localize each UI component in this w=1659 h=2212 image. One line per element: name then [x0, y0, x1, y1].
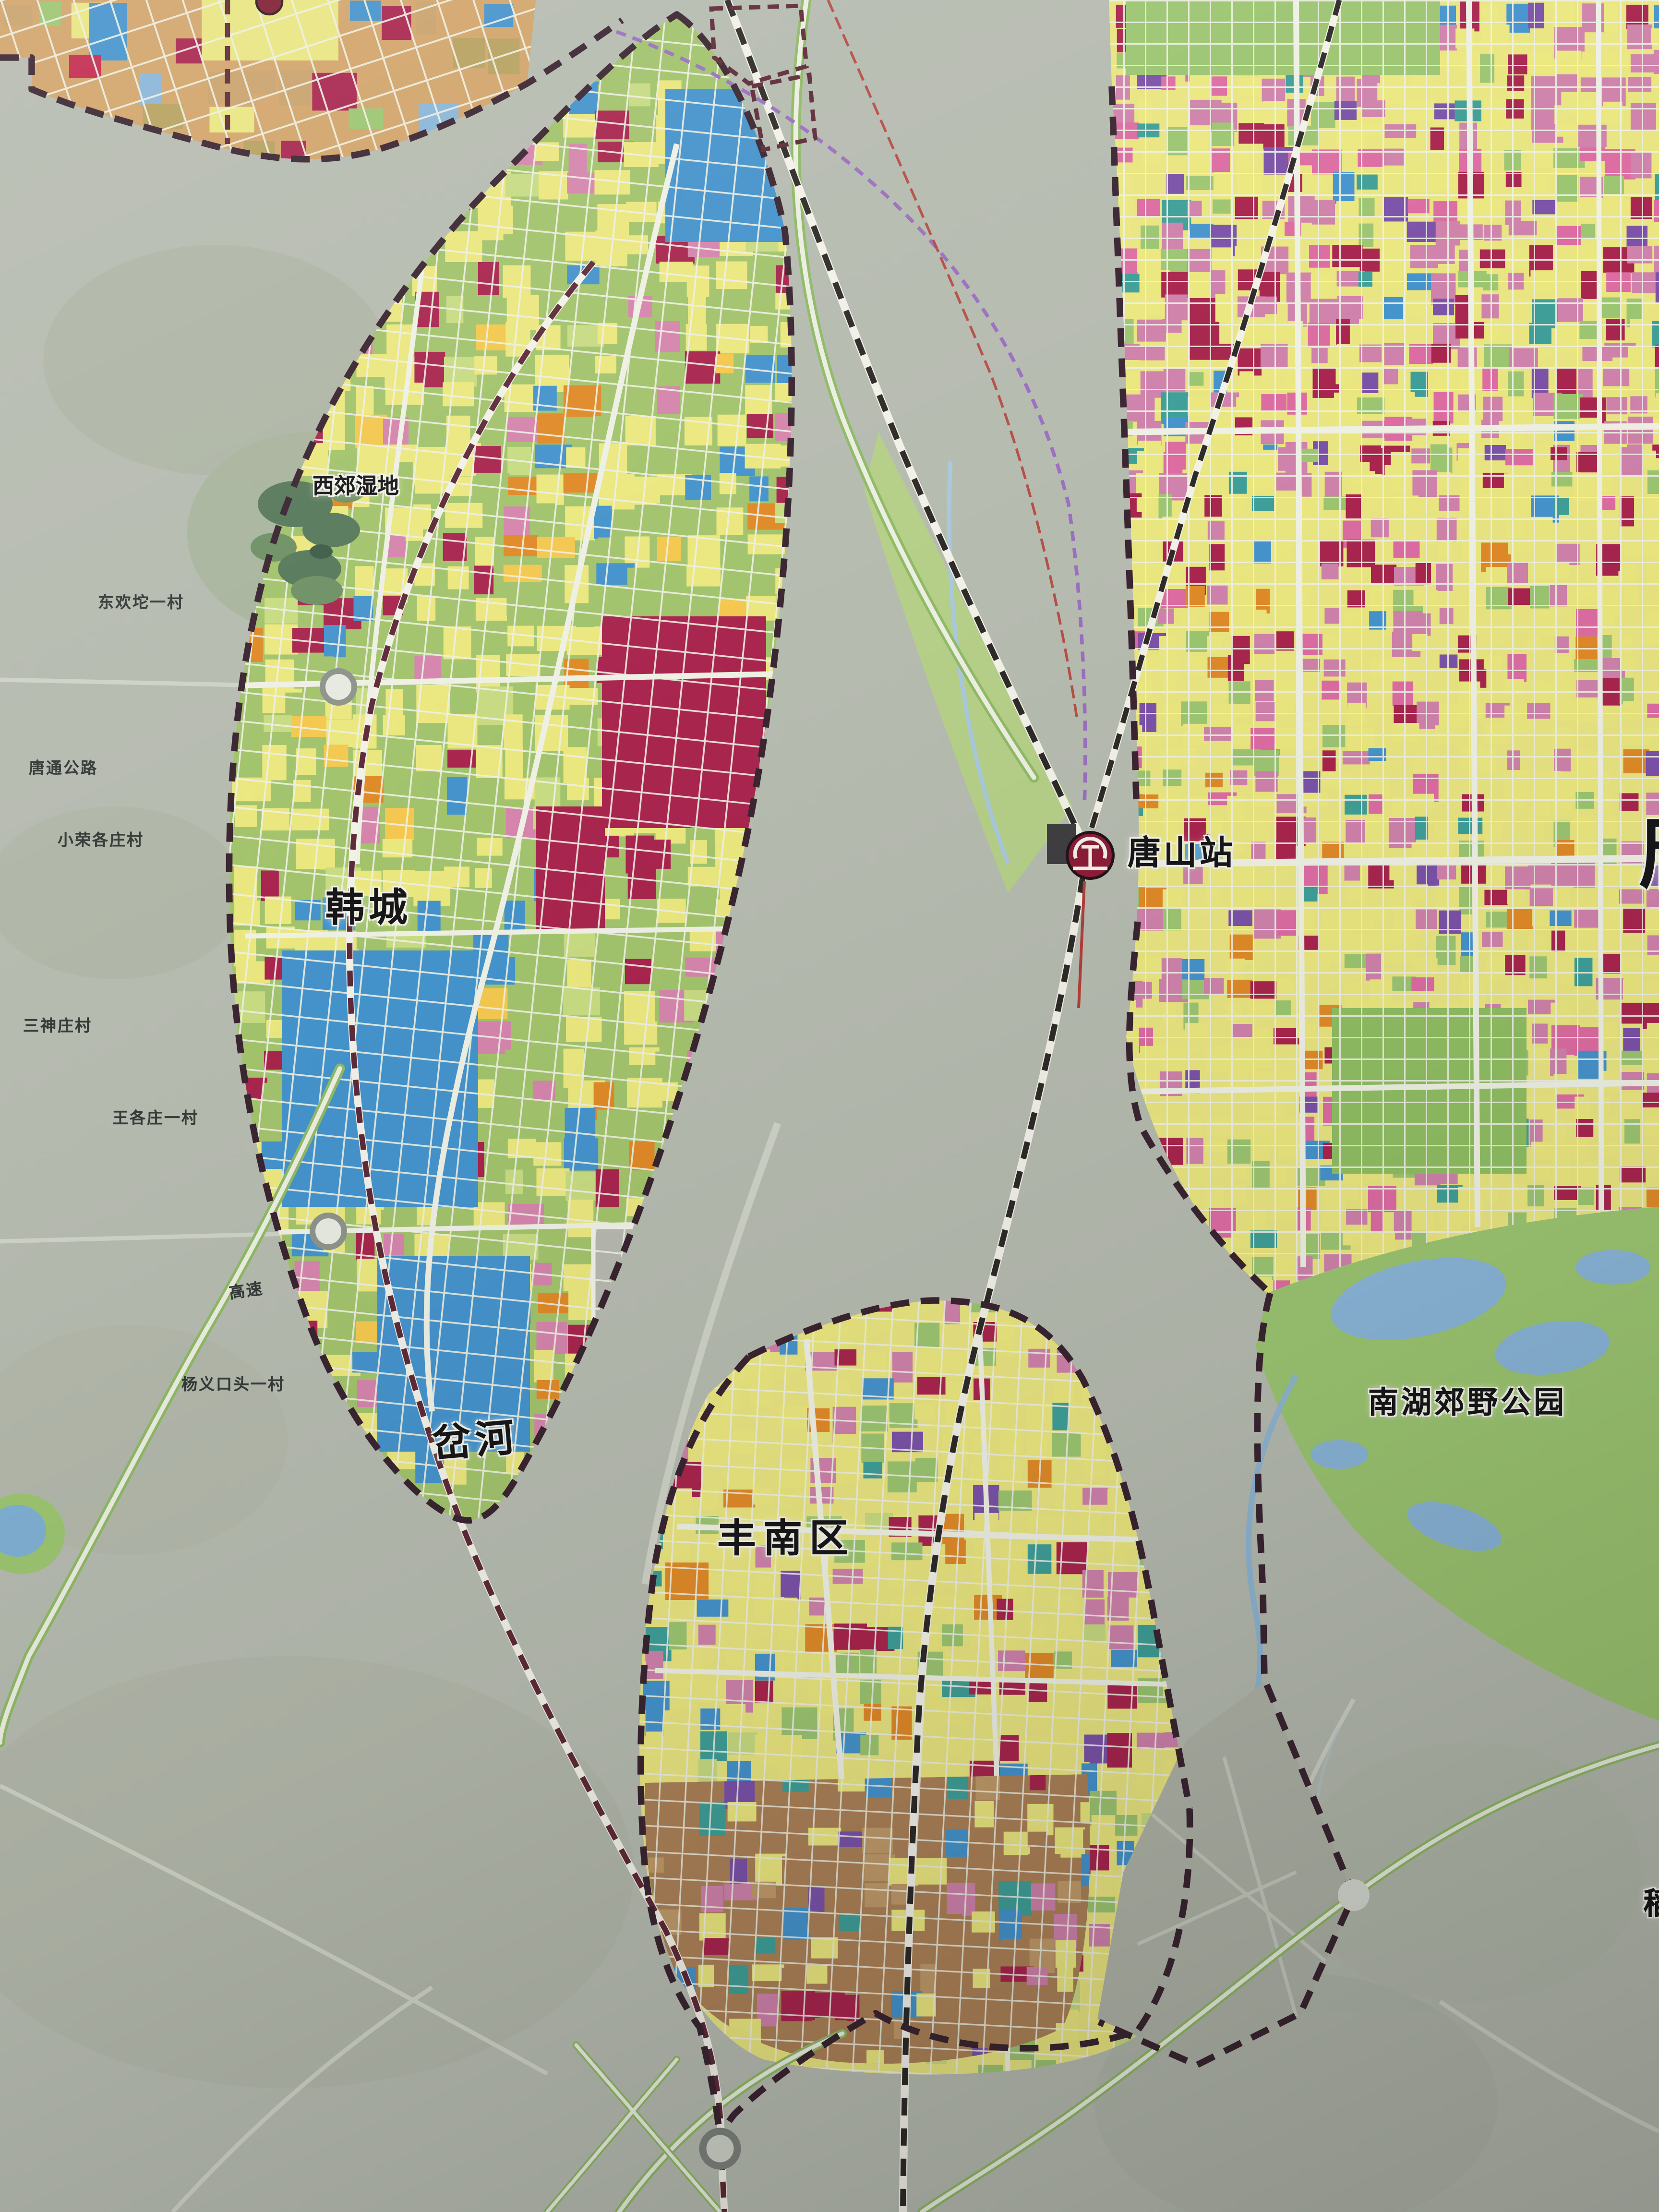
interchange-ring-nw [323, 671, 354, 703]
interchange-ring-se [1338, 1879, 1370, 1911]
interchange-ring-w [313, 1215, 344, 1247]
interchange-ring-s [703, 2131, 737, 2166]
plan-map-photo: 西郊湿地 东欢坨一村 唐通公路 小荣各庄村 韩城 三神庄村 王各庄一村 高速 杨… [0, 0, 1659, 2212]
map-canvas [0, 0, 1659, 2212]
district-tangshan-center [1109, 0, 1659, 1334]
